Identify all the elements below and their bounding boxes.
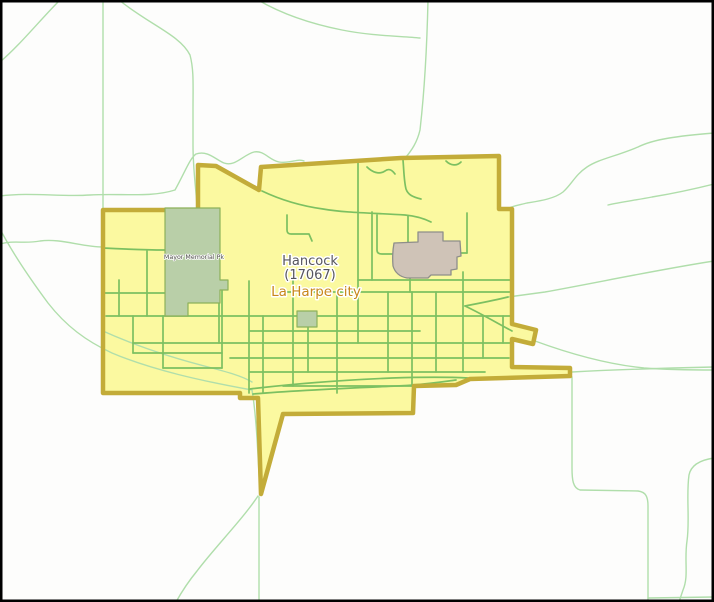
small-park-square bbox=[297, 311, 317, 327]
road-ne-snake bbox=[509, 133, 714, 208]
place-name-label: La Harpe city bbox=[271, 284, 361, 300]
park-label: Mayor Memorial Pk bbox=[164, 254, 224, 261]
road-nw-diagonal bbox=[0, 0, 60, 62]
road-south-east-vertical bbox=[572, 377, 648, 602]
road-ne-branch bbox=[608, 184, 714, 205]
road-east-diagonal bbox=[508, 261, 714, 297]
road-north-curve bbox=[119, 0, 197, 207]
map-viewport[interactable]: Mayor Memorial Pk Hancock (17067) La Har… bbox=[0, 0, 714, 602]
county-name-label: Hancock bbox=[282, 254, 338, 269]
road-north-vertical bbox=[406, 0, 428, 157]
mayor-memorial-park-area bbox=[165, 208, 228, 316]
road-west-wiggle bbox=[0, 240, 103, 247]
county-code-label: (17067) bbox=[284, 268, 336, 283]
road-top-diagonal bbox=[258, 0, 420, 38]
road-spike-sw-diagonal bbox=[176, 496, 258, 602]
road-right-wiggle bbox=[679, 458, 714, 602]
map-canvas[interactable]: Mayor Memorial Pk Hancock (17067) La Har… bbox=[0, 0, 714, 602]
